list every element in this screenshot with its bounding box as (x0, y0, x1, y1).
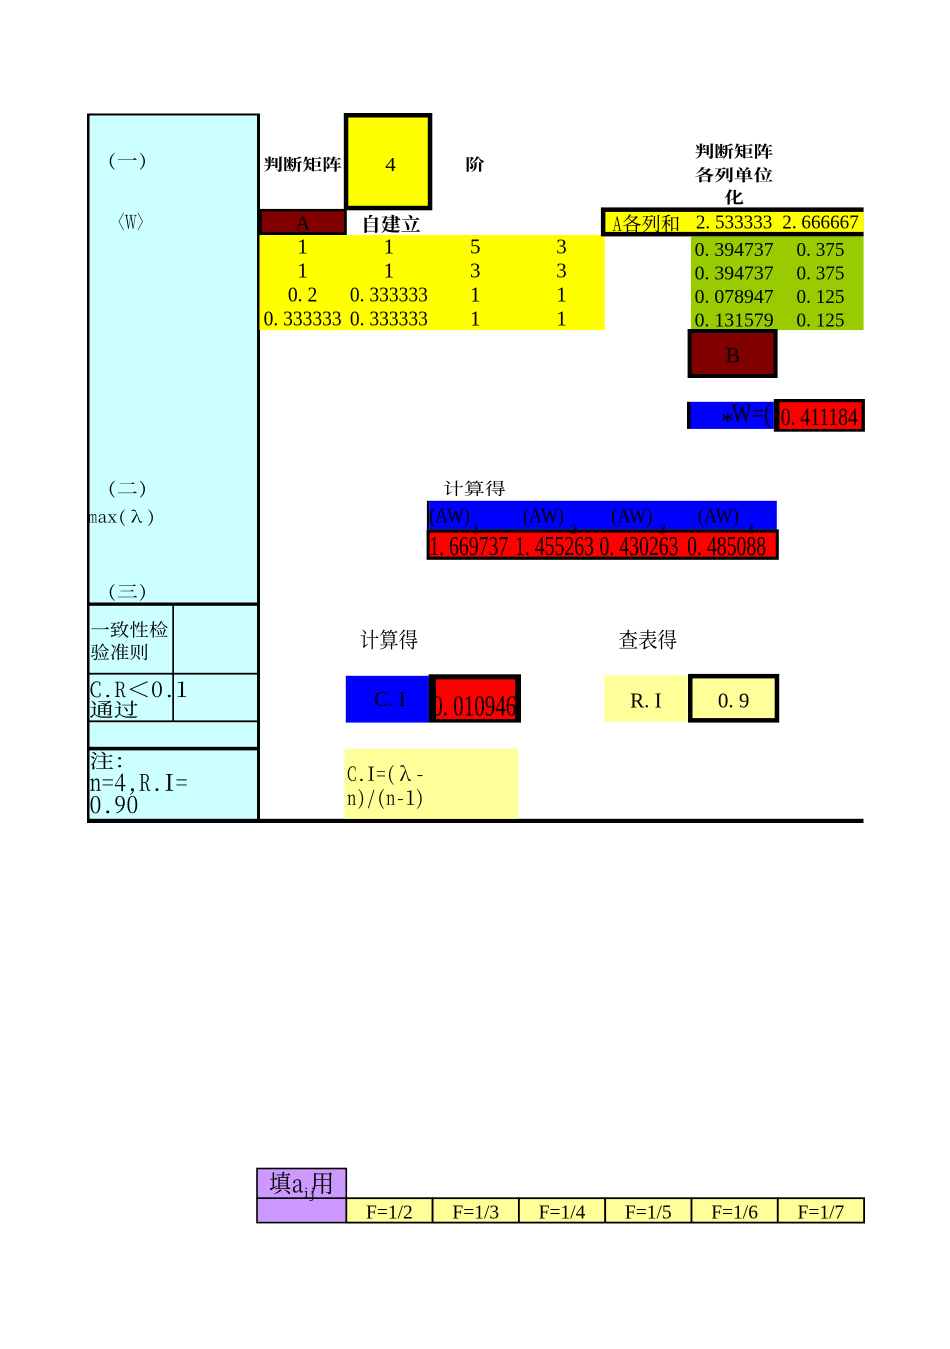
svg-text:0. 394737: 0. 394737 (695, 240, 774, 261)
svg-text:F=1/7: F=1/7 (798, 1202, 845, 1223)
svg-text:1: 1 (297, 258, 308, 282)
svg-text:1. 455263: 1. 455263 (515, 531, 594, 561)
svg-text:F=1/6: F=1/6 (711, 1202, 758, 1223)
svg-text:0. 375: 0. 375 (797, 264, 845, 285)
svg-text:1: 1 (470, 282, 481, 306)
svg-text:3: 3 (556, 258, 567, 282)
svg-text:(AW): (AW) (611, 504, 652, 528)
svg-text:0. 375: 0. 375 (797, 240, 845, 261)
svg-text:0. 125: 0. 125 (797, 310, 845, 331)
svg-text:1: 1 (470, 306, 481, 330)
svg-text:5: 5 (470, 235, 481, 259)
svg-text:0. 394737: 0. 394737 (695, 264, 774, 285)
svg-text:0. 131579: 0. 131579 (695, 310, 774, 331)
svg-text:0. 430263: 0. 430263 (600, 531, 679, 561)
svg-text:(AW): (AW) (429, 504, 470, 528)
svg-text:B: B (725, 342, 740, 367)
svg-text:1: 1 (556, 306, 567, 330)
svg-text:R. I: R. I (630, 689, 662, 713)
svg-text:1: 1 (297, 235, 308, 259)
svg-text:1. 669737: 1. 669737 (429, 531, 508, 561)
svg-text:2. 666667: 2. 666667 (782, 213, 859, 234)
svg-text:0. 485088: 0. 485088 (687, 531, 766, 561)
svg-text:0. 333333: 0. 333333 (264, 306, 342, 330)
svg-text:0. 9: 0. 9 (718, 689, 750, 713)
svg-text:C. I: C. I (374, 687, 406, 711)
svg-text:0. 2: 0. 2 (288, 282, 318, 306)
svg-text:W=(: W=( (732, 399, 772, 428)
svg-text:0. 078947: 0. 078947 (695, 287, 774, 308)
svg-text:1: 1 (556, 282, 567, 306)
svg-text:F=1/2: F=1/2 (366, 1202, 413, 1223)
svg-text:2. 533333: 2. 533333 (696, 213, 773, 234)
svg-text:A: A (295, 212, 310, 234)
svg-text:3: 3 (470, 258, 481, 282)
svg-text:F=1/5: F=1/5 (625, 1202, 672, 1223)
svg-text:F=1/4: F=1/4 (539, 1202, 586, 1223)
svg-text:0. 411184: 0. 411184 (781, 404, 858, 431)
svg-text:(AW): (AW) (523, 504, 564, 528)
svg-text:F=1/3: F=1/3 (452, 1202, 499, 1223)
svg-text:(AW): (AW) (698, 504, 739, 528)
svg-text:1: 1 (384, 235, 395, 259)
svg-text:0. 010946: 0. 010946 (432, 690, 516, 723)
svg-text:0. 333333: 0. 333333 (350, 282, 428, 306)
svg-text:0. 333333: 0. 333333 (350, 306, 428, 330)
svg-text:0. 125: 0. 125 (797, 287, 845, 308)
svg-text:1: 1 (384, 258, 395, 282)
svg-text:3: 3 (556, 235, 567, 259)
svg-text:4: 4 (385, 154, 396, 176)
